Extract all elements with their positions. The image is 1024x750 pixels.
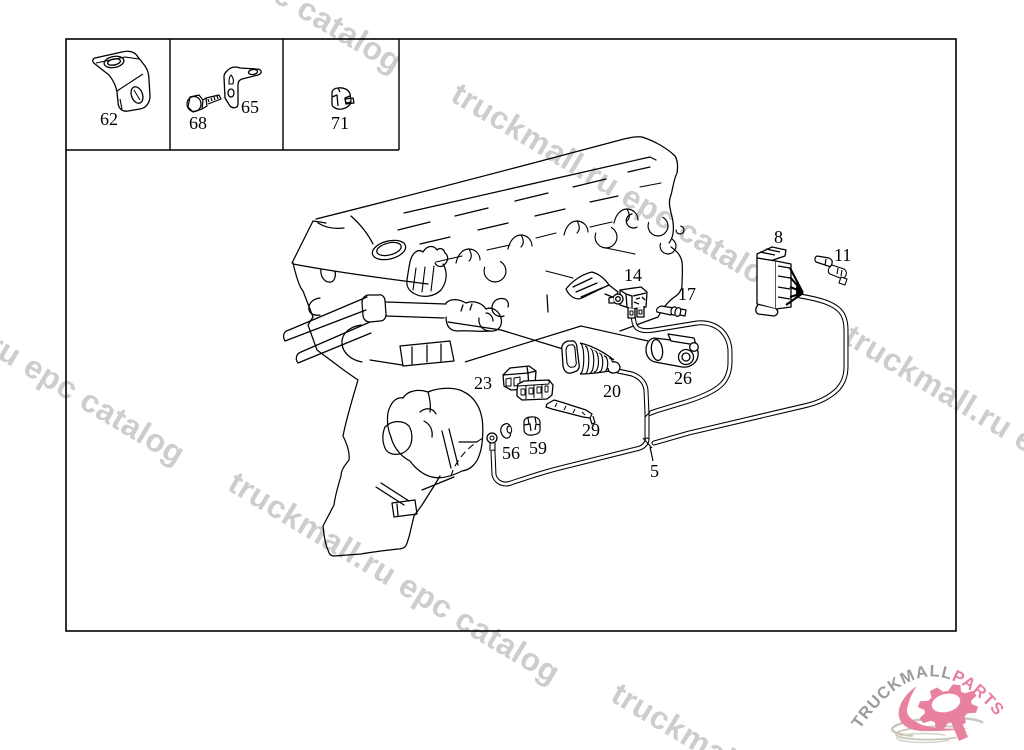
svg-text:truckmall.ru epc catalog: truckmall.ru epc catalog xyxy=(445,75,789,302)
svg-text:truckmall.ru epc catalog: truckmall.ru epc catalog xyxy=(0,245,192,472)
svg-text:11: 11 xyxy=(834,245,851,265)
svg-text:truckmall.ru epc catalog: truckmall.ru epc catalog xyxy=(222,464,566,691)
svg-text:65: 65 xyxy=(241,97,259,117)
svg-text:56: 56 xyxy=(502,443,520,463)
svg-text:59: 59 xyxy=(529,438,547,458)
svg-text:29: 29 xyxy=(582,420,600,440)
svg-text:truckmall.ru epc catalog: truckmall.ru epc catalog xyxy=(838,317,1024,544)
svg-text:14: 14 xyxy=(624,265,642,285)
svg-text:17: 17 xyxy=(678,284,696,304)
svg-text:5: 5 xyxy=(650,461,659,481)
svg-text:68: 68 xyxy=(189,113,207,133)
svg-text:71: 71 xyxy=(331,113,349,133)
svg-text:62: 62 xyxy=(100,109,118,129)
svg-text:23: 23 xyxy=(474,373,492,393)
svg-text:20: 20 xyxy=(603,381,621,401)
svg-text:8: 8 xyxy=(774,227,783,247)
svg-text:26: 26 xyxy=(674,368,692,388)
